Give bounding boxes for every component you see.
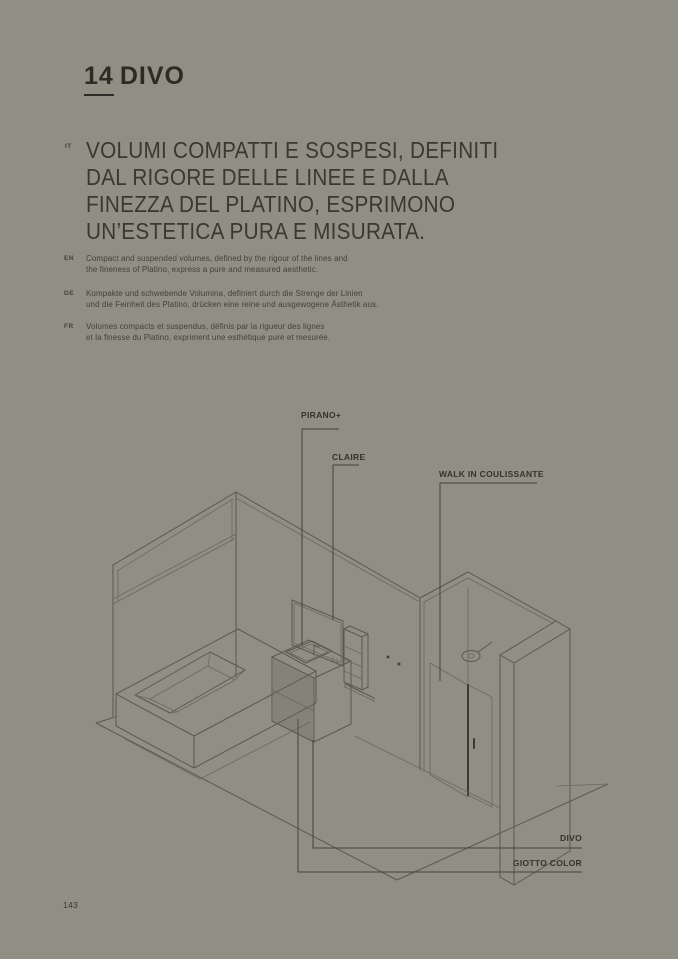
wall-spot-2 xyxy=(398,663,401,666)
floor-outline xyxy=(96,718,608,880)
label-divo: DIVO xyxy=(482,833,582,843)
wall-spot-1 xyxy=(387,656,390,659)
shower-arm xyxy=(478,642,492,652)
bathroom-isometric-drawing xyxy=(0,0,678,959)
shelf-unit xyxy=(344,626,368,690)
page-number: 143 xyxy=(63,900,78,910)
room-walls xyxy=(113,492,420,718)
label-walkin: WALK IN COULISSANTE xyxy=(439,469,544,479)
label-giotto: GIOTTO COLOR xyxy=(482,858,582,868)
towel-bar xyxy=(345,684,374,702)
label-claire: CLAIRE xyxy=(332,452,365,462)
label-pirano: PIRANO+ xyxy=(301,410,341,420)
fluted-front-texture xyxy=(274,659,312,741)
vanity-cabinet xyxy=(272,640,351,742)
